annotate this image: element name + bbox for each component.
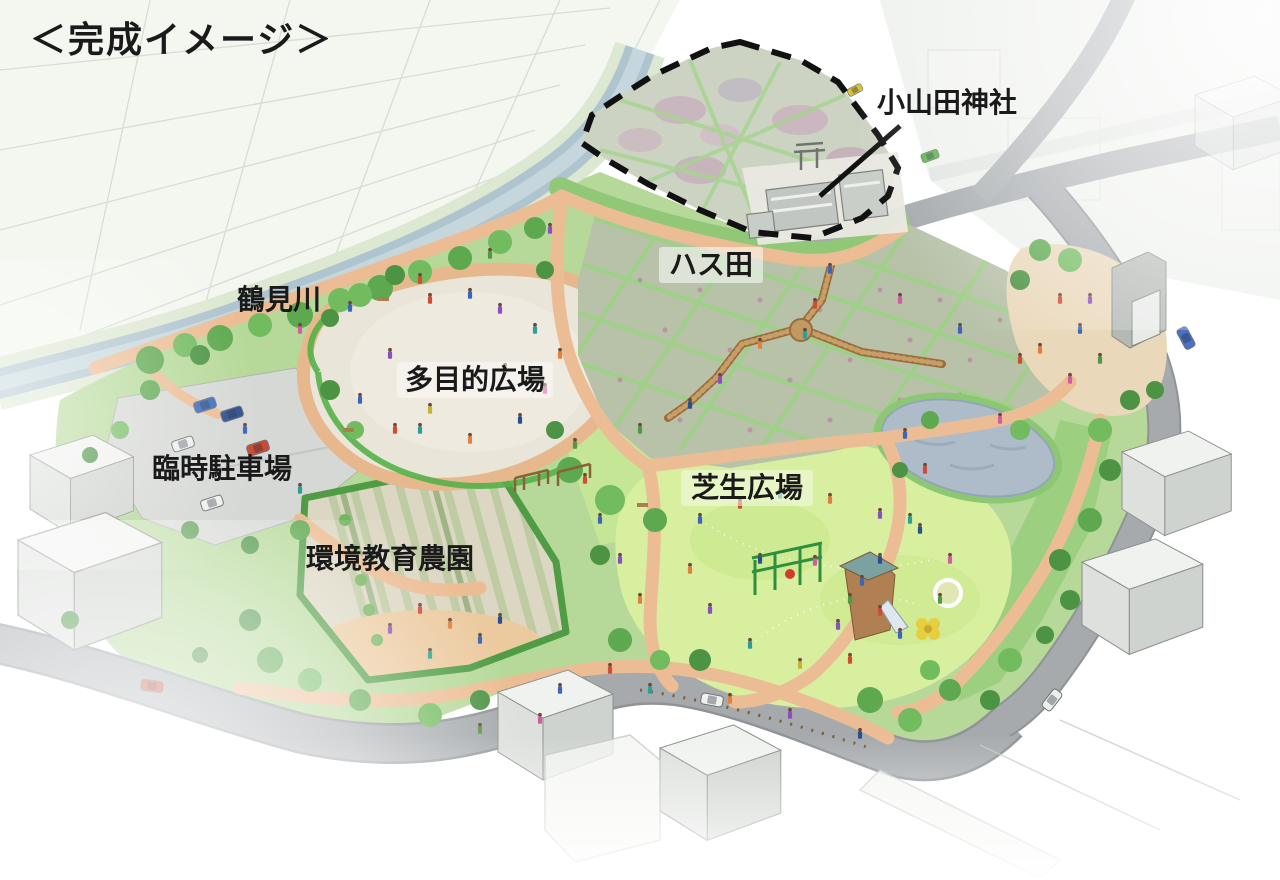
fade-bottom-left [0,520,560,880]
play-ball [785,569,795,579]
label-lotus-field: ハス田 [659,247,763,283]
label-multipurpose-plaza: 多目的広場 [397,362,553,398]
label-oyamada-shrine: 小山田神社 [877,87,1017,119]
label-eco-education-farm: 環境教育農園 [306,543,474,575]
label-tsurumi-river: 鶴見川 [237,284,321,316]
page-title: ＜完成イメージ＞ [30,20,333,61]
fade-top-right [860,0,1280,330]
park-illustration-drawing [0,0,1280,880]
park-plan-illustration: ＜完成イメージ＞ 小山田神社 ハス田 鶴見川 多目的広場 臨時駐車場 環境教育農… [0,0,1280,880]
label-temporary-parking: 臨時駐車場 [152,453,292,485]
fade-left [0,260,260,570]
label-lawn-plaza: 芝生広場 [681,470,813,506]
